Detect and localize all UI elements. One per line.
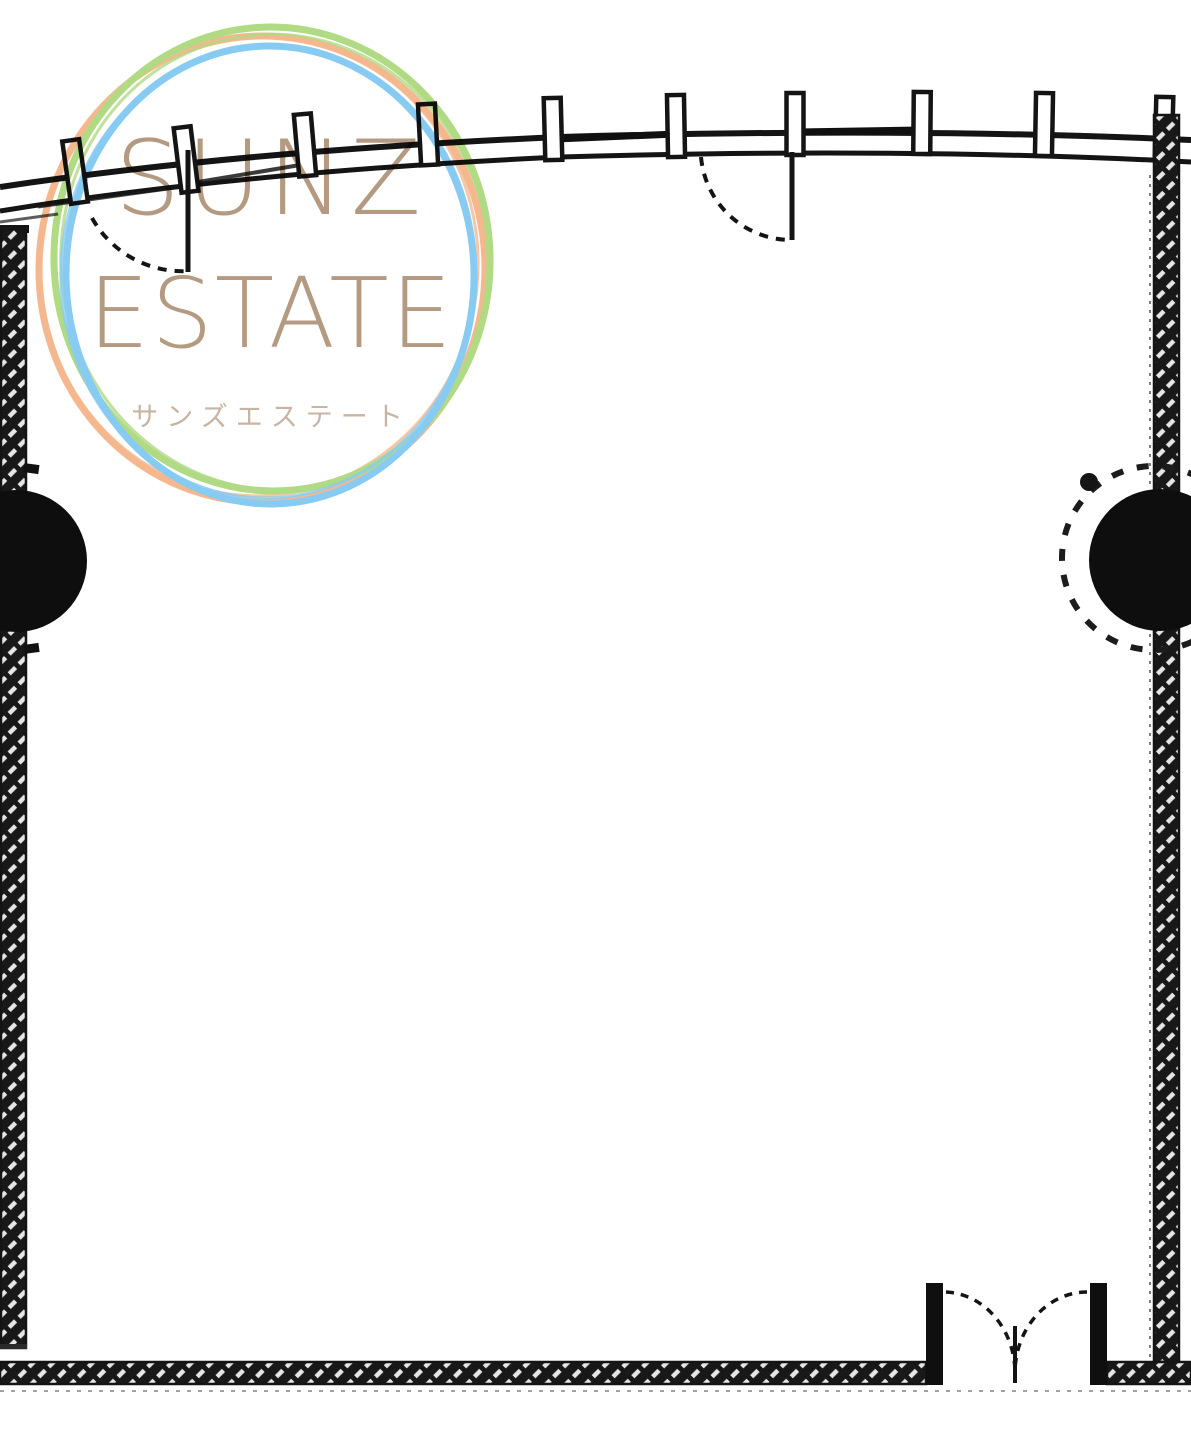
top-wall-sketch-stroke [38, 187, 182, 207]
right-wall-hatched-band [1154, 115, 1179, 1362]
mullion-tick [294, 113, 316, 176]
left-wall-bottom-cap [0, 1344, 27, 1349]
mullion-tick [418, 104, 438, 166]
mullion-tick [913, 92, 931, 154]
column-right-solid [1089, 489, 1191, 631]
column-left-solid [0, 490, 87, 632]
window-mullions [62, 92, 1173, 204]
door-swing-arc [701, 157, 791, 240]
door-jamb-right [1090, 1283, 1107, 1385]
mullion-tick [787, 93, 804, 155]
mullion-tick [1035, 93, 1053, 156]
bottom-wall [0, 1362, 1191, 1391]
floorplan-canvas: SUNZ ESTATE サンズエステート [0, 0, 1191, 1440]
top-wall-sketch-stroke [798, 130, 920, 132]
left-wall-hatched-band [1, 229, 26, 1348]
mullion-tick [544, 98, 563, 160]
column-right [1062, 466, 1191, 650]
mullion-tick [667, 95, 685, 157]
top-wall [0, 92, 1191, 222]
right-wall [1150, 115, 1179, 1362]
bottom-wall-right-band [1107, 1362, 1191, 1384]
door-swing-top-center [701, 152, 792, 240]
double-door-bottom-right [926, 1283, 1107, 1385]
door-jamb-left [926, 1283, 943, 1385]
floorplan-drawing [0, 0, 1191, 1440]
left-wall [0, 225, 40, 1349]
top-wall-sketch-stroke [556, 134, 676, 139]
column-left [0, 490, 87, 632]
column-right-dot-marker [1080, 473, 1098, 491]
door-swing-arc-left [946, 1292, 1015, 1372]
mullion-tick [62, 139, 88, 204]
bottom-wall-left-band [0, 1362, 926, 1384]
door-swing-arc-right [1015, 1292, 1087, 1372]
top-wall-sketch-stroke [0, 214, 58, 222]
door-swing-arc [92, 218, 189, 271]
